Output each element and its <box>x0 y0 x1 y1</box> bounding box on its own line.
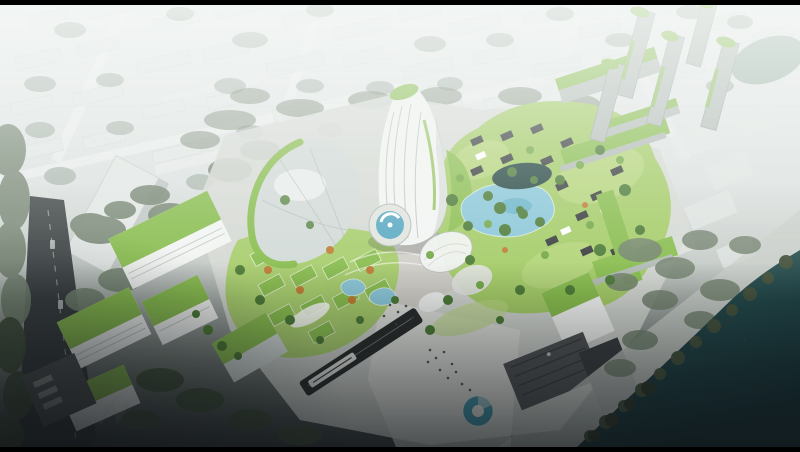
corner-shadow-overlay <box>0 152 420 452</box>
aerial-masterplan-rendering: aerial-architectural-rendering <box>0 0 800 452</box>
letterbox-bottom <box>0 447 800 452</box>
rendering-canvas: aerial-architectural-rendering <box>0 0 800 452</box>
letterbox-top <box>0 0 800 5</box>
